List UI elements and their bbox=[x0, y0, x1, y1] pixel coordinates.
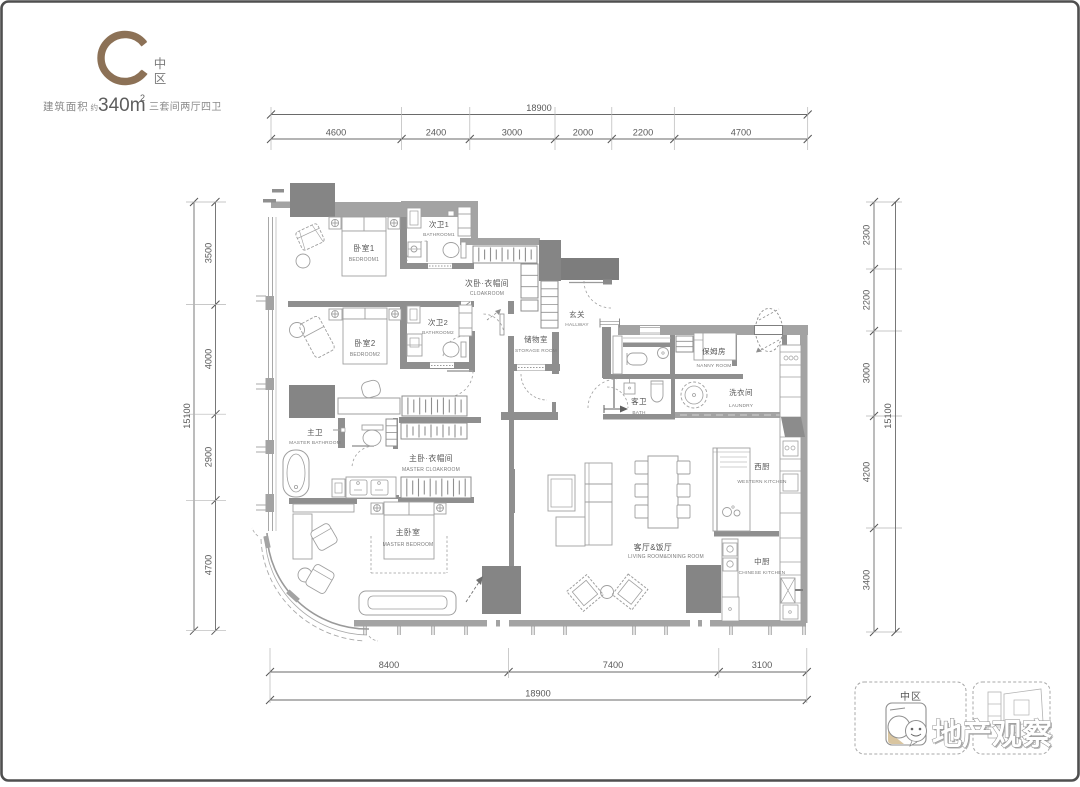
svg-text:3400: 3400 bbox=[862, 570, 872, 590]
svg-text:BATH: BATH bbox=[632, 410, 646, 416]
svg-text:HALLWAY: HALLWAY bbox=[565, 322, 589, 328]
svg-text:卧室2: 卧室2 bbox=[354, 338, 375, 348]
svg-text:2000: 2000 bbox=[573, 128, 593, 138]
svg-text:客卫: 客卫 bbox=[631, 396, 647, 406]
svg-text:地产观察: 地产观察 bbox=[932, 718, 1053, 752]
svg-text:BATHROOM1: BATHROOM1 bbox=[423, 232, 455, 238]
svg-text:LIVING ROOM&DINING ROOM: LIVING ROOM&DINING ROOM bbox=[628, 554, 704, 560]
svg-text:西厨: 西厨 bbox=[754, 462, 770, 471]
svg-text:18900: 18900 bbox=[526, 103, 552, 113]
svg-text:保姆房: 保姆房 bbox=[702, 346, 726, 356]
svg-text:4000: 4000 bbox=[204, 349, 214, 369]
svg-text:建筑面积: 建筑面积 bbox=[43, 100, 89, 113]
svg-text:2: 2 bbox=[140, 93, 145, 103]
svg-text:15100: 15100 bbox=[883, 403, 893, 429]
svg-text:中厨: 中厨 bbox=[754, 556, 770, 566]
svg-text:客厅&饭厅: 客厅&饭厅 bbox=[634, 542, 672, 552]
svg-text:8400: 8400 bbox=[379, 660, 399, 670]
svg-text:MASTER BATHROOM: MASTER BATHROOM bbox=[289, 440, 341, 446]
svg-text:NANNY ROOM: NANNY ROOM bbox=[697, 363, 732, 369]
svg-text:区: 区 bbox=[154, 72, 167, 86]
svg-text:次卫1: 次卫1 bbox=[429, 219, 449, 229]
svg-text:3100: 3100 bbox=[752, 660, 772, 670]
svg-text:三套间两厅四卫: 三套间两厅四卫 bbox=[149, 100, 222, 113]
svg-text:LAUNDRY: LAUNDRY bbox=[729, 403, 754, 409]
svg-text:主卧·衣帽间: 主卧·衣帽间 bbox=[409, 453, 453, 463]
svg-text:次卧·衣帽间: 次卧·衣帽间 bbox=[465, 278, 509, 288]
svg-text:BATHROOM2: BATHROOM2 bbox=[422, 330, 454, 336]
svg-text:3500: 3500 bbox=[204, 243, 214, 263]
svg-text:中: 中 bbox=[154, 56, 167, 71]
svg-text:洗衣间: 洗衣间 bbox=[729, 387, 753, 397]
svg-text:次卫2: 次卫2 bbox=[428, 317, 448, 327]
svg-text:4200: 4200 bbox=[862, 462, 872, 482]
svg-text:CLOAKROOM: CLOAKROOM bbox=[470, 291, 504, 297]
svg-text:中区: 中区 bbox=[900, 690, 922, 703]
svg-text:卧室1: 卧室1 bbox=[353, 243, 374, 253]
svg-text:4700: 4700 bbox=[204, 555, 214, 575]
svg-text:2900: 2900 bbox=[204, 447, 214, 467]
svg-text:7400: 7400 bbox=[603, 660, 623, 670]
svg-text:约: 约 bbox=[91, 102, 99, 112]
svg-text:4600: 4600 bbox=[326, 128, 346, 138]
svg-text:2200: 2200 bbox=[633, 128, 653, 138]
svg-text:15100: 15100 bbox=[182, 403, 192, 429]
svg-text:4700: 4700 bbox=[731, 128, 751, 138]
svg-text:18900: 18900 bbox=[525, 689, 551, 699]
svg-text:主卧室: 主卧室 bbox=[396, 527, 421, 537]
svg-text:BEDROOM1: BEDROOM1 bbox=[349, 257, 379, 263]
svg-text:BEDROOM2: BEDROOM2 bbox=[350, 352, 380, 358]
svg-text:2200: 2200 bbox=[862, 290, 872, 310]
svg-text:STORAGE ROOM: STORAGE ROOM bbox=[515, 348, 557, 354]
svg-text:2400: 2400 bbox=[426, 128, 446, 138]
svg-text:WESTERN KITCHEN: WESTERN KITCHEN bbox=[737, 479, 787, 485]
svg-text:340m: 340m bbox=[98, 95, 146, 116]
svg-text:MASTER BEDROOM: MASTER BEDROOM bbox=[383, 542, 434, 548]
svg-text:储物室: 储物室 bbox=[524, 334, 548, 344]
svg-text:3000: 3000 bbox=[502, 128, 522, 138]
svg-text:玄关: 玄关 bbox=[569, 309, 585, 319]
svg-text:CHINESE KITCHEN: CHINESE KITCHEN bbox=[739, 570, 786, 576]
svg-text:2300: 2300 bbox=[862, 225, 872, 245]
svg-text:MASTER CLOAKROOM: MASTER CLOAKROOM bbox=[402, 467, 460, 473]
svg-text:主卫: 主卫 bbox=[307, 427, 323, 437]
svg-text:3000: 3000 bbox=[862, 363, 872, 383]
